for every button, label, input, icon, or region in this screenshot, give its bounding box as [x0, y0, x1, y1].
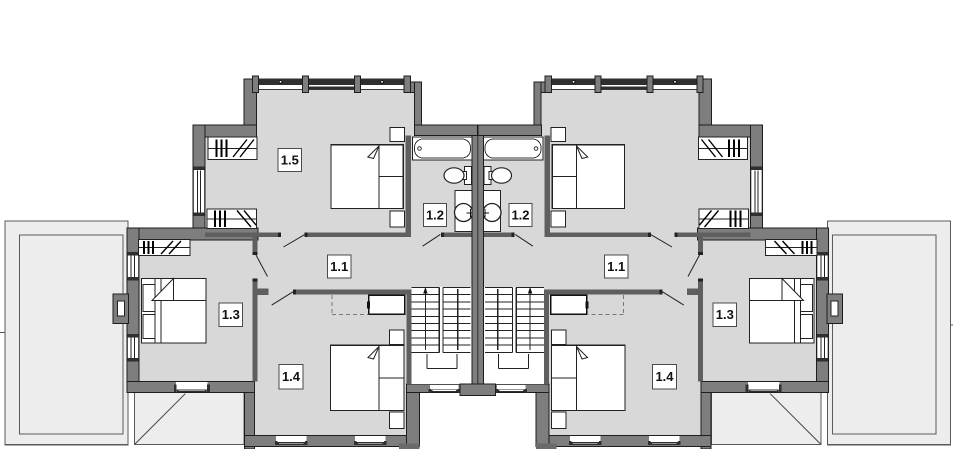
svg-text:1.2: 1.2 — [426, 208, 444, 223]
svg-text:1.4: 1.4 — [655, 369, 674, 384]
svg-text:1.5: 1.5 — [281, 153, 299, 168]
svg-text:1.1: 1.1 — [607, 259, 625, 274]
svg-text:1.3: 1.3 — [222, 307, 240, 322]
svg-text:1.3: 1.3 — [716, 307, 734, 322]
svg-text:1.4: 1.4 — [282, 369, 301, 384]
svg-text:1.2: 1.2 — [511, 208, 529, 223]
svg-text:1.1: 1.1 — [330, 259, 348, 274]
